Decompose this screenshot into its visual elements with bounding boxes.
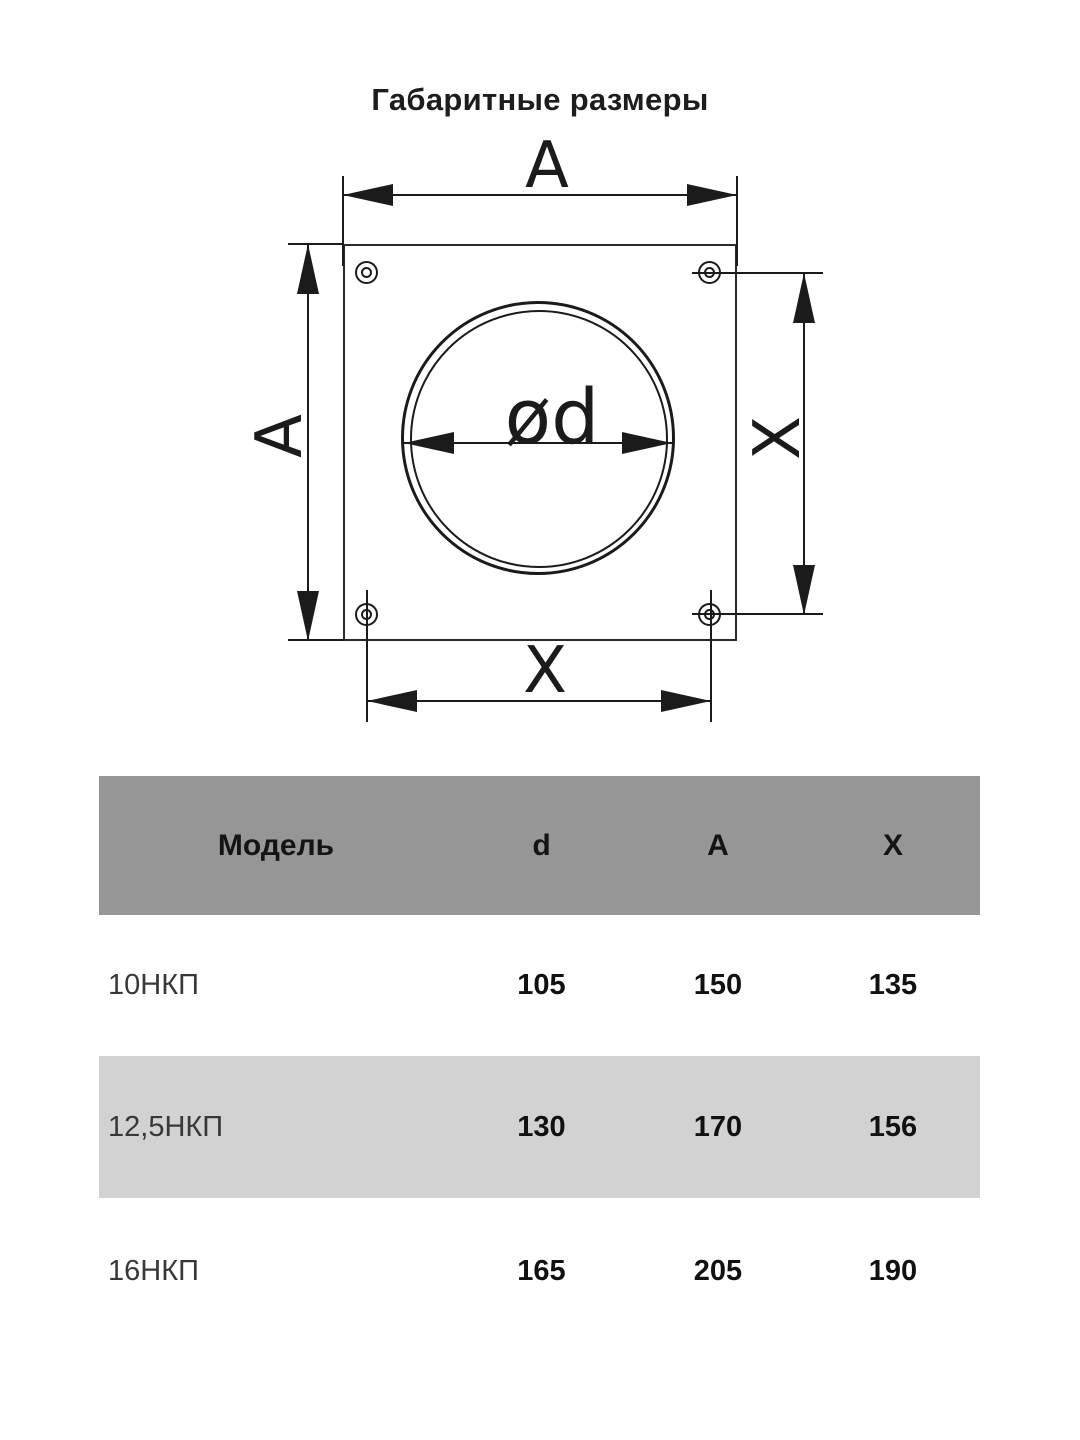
screw-hole-top-right xyxy=(698,261,721,284)
arrowhead-left xyxy=(367,690,417,712)
dimensions-table: Модель d A X 10НКП 105 150 135 12,5НКП 1… xyxy=(99,776,980,1344)
column-header-x: X xyxy=(806,776,980,915)
model-name: 16НКП xyxy=(99,1198,453,1344)
screw-hole-bottom-right xyxy=(698,603,721,626)
dim-label-diameter: ød xyxy=(452,378,652,456)
value-x: 156 xyxy=(806,1056,980,1198)
value-a: 170 xyxy=(630,1056,806,1198)
value-x: 190 xyxy=(806,1198,980,1344)
screw-hole-core xyxy=(361,609,372,620)
screw-hole-top-left xyxy=(355,261,378,284)
arrowhead-up xyxy=(297,244,319,294)
ext-line-left-top xyxy=(288,243,344,245)
screw-hole-core xyxy=(361,267,372,278)
arrowhead-up xyxy=(793,273,815,323)
ext-line-top-right xyxy=(736,176,738,266)
table-row: 10НКП 105 150 135 xyxy=(99,915,980,1056)
dim-label-x-bottom: X xyxy=(445,642,645,700)
screw-hole-core xyxy=(704,267,715,278)
value-a: 205 xyxy=(630,1198,806,1344)
column-header-model: Модель xyxy=(99,776,453,915)
value-d: 165 xyxy=(453,1198,630,1344)
value-d: 130 xyxy=(453,1056,630,1198)
product-dimensions-page: Габаритные размеры A A X X xyxy=(0,0,1080,1440)
table-row: 16НКП 165 205 190 xyxy=(99,1198,980,1344)
screw-hole-bottom-left xyxy=(355,603,378,626)
arrowhead-down xyxy=(297,591,319,641)
value-x: 135 xyxy=(806,915,980,1056)
arrowhead-left xyxy=(343,184,393,206)
arrowhead-down xyxy=(793,565,815,615)
dim-label-a-left: A xyxy=(248,376,312,496)
page-title: Габаритные размеры xyxy=(0,82,1080,118)
arrowhead-right xyxy=(687,184,737,206)
value-d: 105 xyxy=(453,915,630,1056)
table-header-row: Модель d A X xyxy=(99,776,980,915)
value-a: 150 xyxy=(630,915,806,1056)
column-header-a: A xyxy=(630,776,806,915)
ext-line-top-left xyxy=(342,176,344,266)
screw-hole-core xyxy=(704,609,715,620)
ext-line-left-bottom xyxy=(288,639,344,641)
table-row: 12,5НКП 130 170 156 xyxy=(99,1056,980,1198)
dim-label-x-right: X xyxy=(746,378,810,498)
model-name: 10НКП xyxy=(99,915,453,1056)
model-name: 12,5НКП xyxy=(99,1056,453,1198)
column-header-d: d xyxy=(453,776,630,915)
dim-label-a-top: A xyxy=(447,135,647,197)
arrowhead-right xyxy=(661,690,711,712)
